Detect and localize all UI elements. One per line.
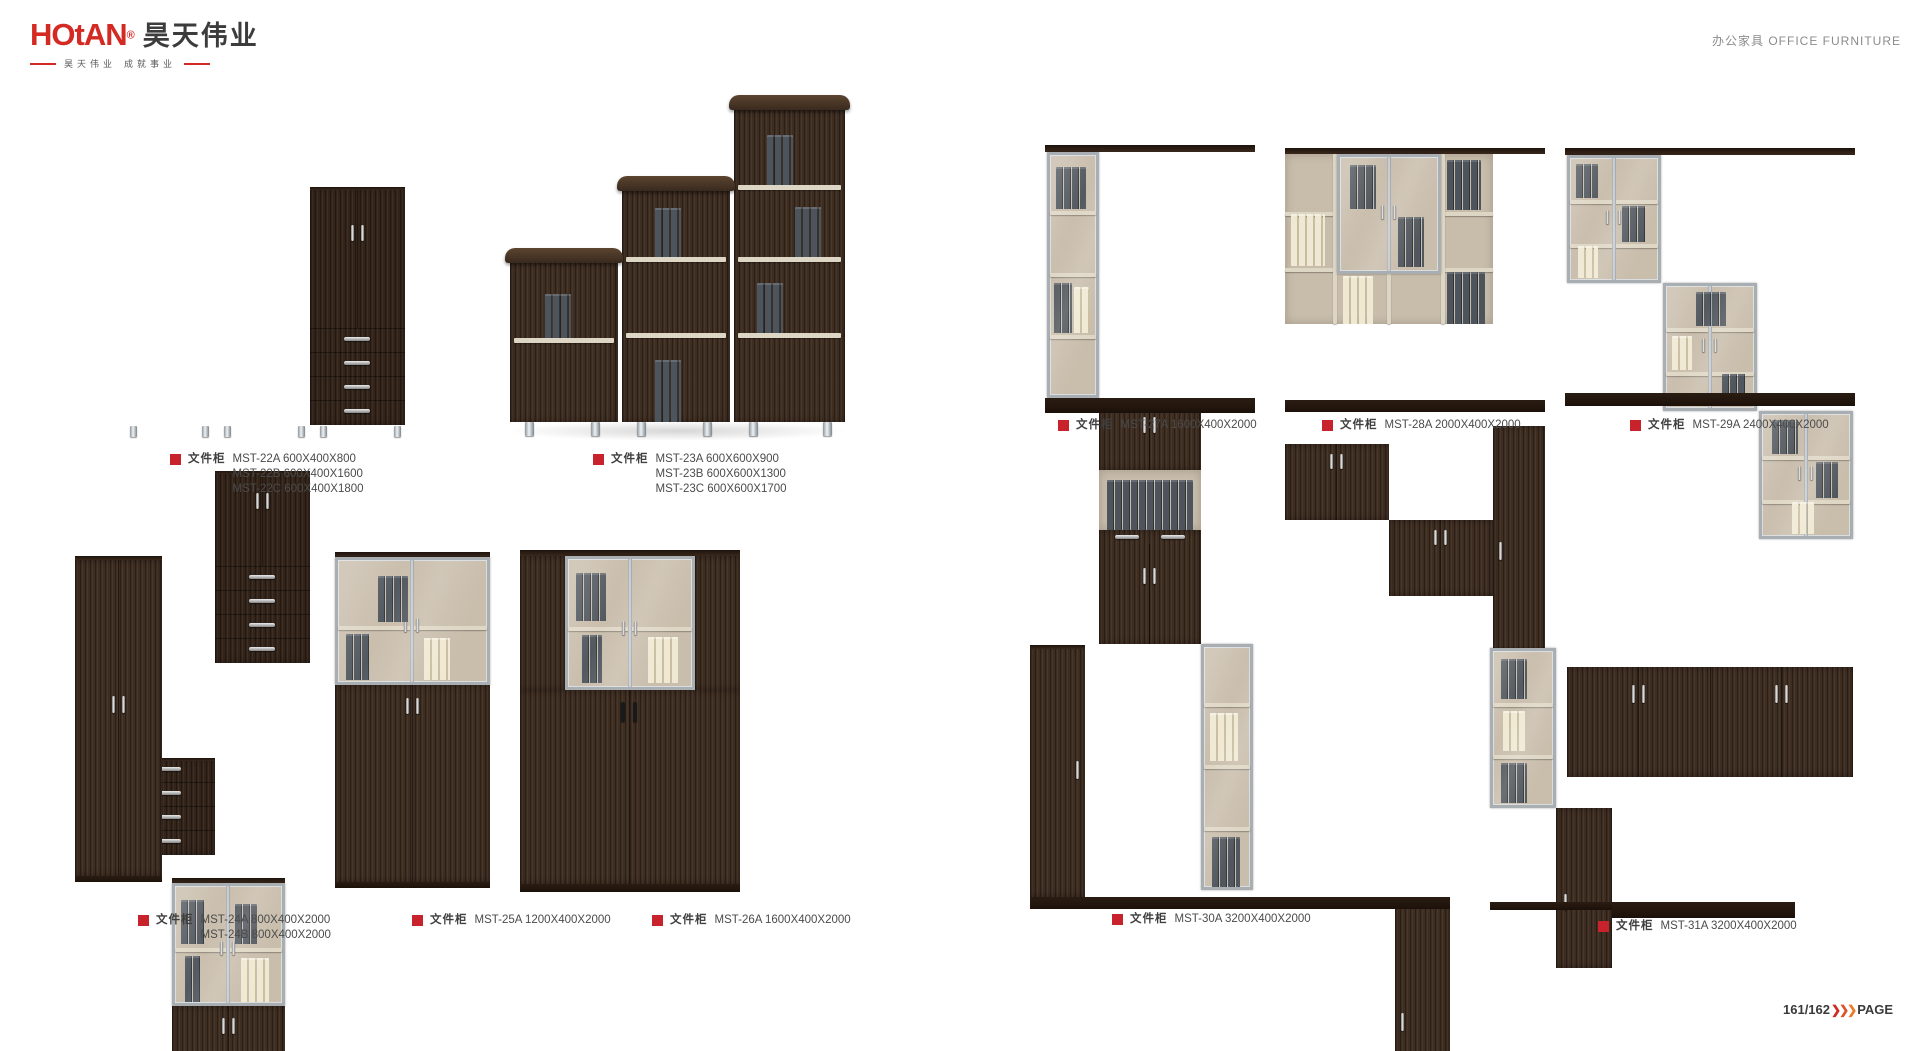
shelf xyxy=(1493,755,1553,759)
binder-group xyxy=(1578,246,1598,278)
cell-divider xyxy=(1387,274,1391,324)
door-handle xyxy=(361,225,364,241)
model-line: MST-24A 800X400X2000 xyxy=(201,913,331,928)
glass-door-unit xyxy=(565,556,695,690)
corner-shelf-top-cap xyxy=(617,176,735,191)
shelf xyxy=(626,257,726,262)
product-label-mst-27: 文件柜 MST-27A 1600X400X2000 xyxy=(1058,418,1257,433)
cabinet-foot xyxy=(749,422,758,436)
product-label-mst-24: 文件柜 MST-24A 800X400X2000 MST-24B 800X400… xyxy=(138,913,331,943)
label-marker-icon xyxy=(1630,420,1641,431)
page-numbers: 161/162 xyxy=(1783,1002,1830,1017)
binder-group xyxy=(1503,711,1525,751)
binder-group xyxy=(655,208,681,257)
product-models: MST-28A 2000X400X2000 xyxy=(1385,418,1521,433)
product-label-mst-22: 文件柜 MST-22A 600X400X800 MST-22B 600X400X… xyxy=(170,452,364,497)
product-models: MST-26A 1600X400X2000 xyxy=(715,913,851,928)
glass-door-section xyxy=(1663,283,1757,411)
product-models: MST-22A 600X400X800 MST-22B 600X400X1600… xyxy=(233,452,364,497)
door-seam xyxy=(412,685,413,882)
label-marker-icon xyxy=(652,915,663,926)
tagline-text-left: 昊天伟业 xyxy=(64,57,116,70)
product-models: MST-31A 3200X400X2000 xyxy=(1661,919,1797,934)
product-label-mst-28: 文件柜 MST-28A 2000X400X2000 xyxy=(1322,418,1521,433)
plinth xyxy=(1030,897,1450,909)
door-handle xyxy=(406,698,409,714)
product-models: MST-27A 1600X400X2000 xyxy=(1121,418,1257,433)
cabinet-foot xyxy=(525,422,534,436)
plinth xyxy=(1612,902,1795,918)
cabinet-foot xyxy=(703,422,712,436)
door-handle xyxy=(1381,205,1384,219)
product-image-mst-25 xyxy=(335,552,490,890)
shelf xyxy=(1050,273,1096,277)
cabinet-foot xyxy=(591,422,600,436)
label-marker-icon xyxy=(593,454,604,465)
binder-group xyxy=(1447,272,1485,324)
door-seam xyxy=(1387,157,1391,271)
tagline-bar-right xyxy=(184,63,210,65)
binder-group xyxy=(1056,167,1086,209)
door-handle xyxy=(1702,338,1705,352)
glass-door-unit xyxy=(1337,154,1441,274)
door-seam xyxy=(629,690,630,884)
shelf xyxy=(1050,211,1096,215)
door-handle xyxy=(1499,542,1502,560)
binder-group xyxy=(545,294,571,338)
page-word: PAGE xyxy=(1857,1002,1893,1017)
plinth xyxy=(1490,902,1612,910)
plinth xyxy=(1565,393,1855,406)
shelf xyxy=(738,333,841,338)
door-handle xyxy=(1798,466,1801,480)
cabinet-side-panel xyxy=(520,556,565,690)
shelf xyxy=(626,333,726,338)
cabinet-foot xyxy=(320,426,327,437)
product-image-mst-29 xyxy=(1565,148,1855,408)
door-handle xyxy=(1714,338,1717,352)
drawer-handle xyxy=(1115,535,1139,539)
cabinet-door xyxy=(1099,530,1201,644)
binder-group xyxy=(346,634,370,680)
binder-group xyxy=(1074,287,1089,333)
product-type: 文件柜 xyxy=(156,913,194,943)
product-label-mst-30: 文件柜 MST-30A 3200X400X2000 xyxy=(1112,912,1311,927)
floor-shadow xyxy=(505,421,850,441)
door-seam xyxy=(1336,444,1337,520)
door-handle xyxy=(1444,530,1447,545)
model-line: MST-27A 1600X400X2000 xyxy=(1121,418,1257,433)
door-handle xyxy=(351,225,354,241)
model-line: MST-22A 600X400X800 xyxy=(233,452,364,467)
binder-group xyxy=(378,576,408,622)
drawer-seam xyxy=(310,400,405,401)
binder-group xyxy=(241,958,269,1002)
model-line: MST-23A 600X600X900 xyxy=(656,452,787,467)
product-label-mst-29: 文件柜 MST-29A 2400X400X2000 xyxy=(1630,418,1829,433)
shelf xyxy=(738,257,841,262)
model-line: MST-23B 600X600X1300 xyxy=(656,467,787,482)
drawer-handle xyxy=(344,361,370,365)
door-handle xyxy=(621,702,625,722)
corner-shelf-top-cap xyxy=(729,95,850,110)
label-marker-icon xyxy=(1322,420,1333,431)
product-image-mst-30 xyxy=(1030,643,1450,909)
door-handle xyxy=(634,621,637,635)
label-marker-icon xyxy=(1112,914,1123,925)
door-handle xyxy=(633,702,637,722)
cabinet-foot xyxy=(394,426,401,437)
binder-group xyxy=(1291,214,1325,266)
model-line: MST-30A 3200X400X2000 xyxy=(1175,912,1311,927)
door-handle xyxy=(220,941,223,955)
logo-brand-cn: 昊天伟业 xyxy=(143,21,259,51)
binder-group xyxy=(424,638,450,680)
cabinet xyxy=(310,187,405,425)
label-marker-icon xyxy=(1598,921,1609,932)
cabinet-foot xyxy=(823,422,832,436)
plinth xyxy=(520,884,740,892)
cabinet-door xyxy=(1556,808,1612,968)
door-handle xyxy=(1340,454,1343,469)
door-seam xyxy=(357,190,358,328)
label-marker-icon xyxy=(138,915,149,926)
product-type: 文件柜 xyxy=(1648,418,1686,433)
door-seam xyxy=(1440,520,1441,596)
cabinet xyxy=(172,878,285,1051)
product-models: MST-23A 600X600X900 MST-23B 600X600X1300… xyxy=(656,452,787,497)
binder-group xyxy=(1398,217,1424,267)
plinth xyxy=(1045,398,1255,413)
product-label-mst-25: 文件柜 MST-25A 1200X400X2000 xyxy=(412,913,611,928)
model-line: MST-22C 600X400X1800 xyxy=(233,482,364,497)
model-line: MST-26A 1600X400X2000 xyxy=(715,913,851,928)
model-line: MST-22B 600X400X1600 xyxy=(233,467,364,482)
product-image-mst-23 xyxy=(505,95,850,442)
door-handle xyxy=(1393,205,1396,219)
cabinet-top-edge xyxy=(1045,145,1255,152)
door-handle xyxy=(1153,568,1156,584)
product-image-mst-28 xyxy=(1285,148,1545,412)
shelf xyxy=(1050,335,1096,339)
model-line: MST-24B 800X400X2000 xyxy=(201,928,331,943)
binder-group xyxy=(1107,480,1193,530)
binder-group xyxy=(1343,276,1373,324)
drawer-handle xyxy=(344,409,370,413)
cabinet-foot xyxy=(202,426,209,437)
door-handle xyxy=(1606,210,1609,224)
page-footer: 161/162 ❯❯❯ PAGE xyxy=(1783,1002,1893,1017)
brand-logo: HOtAN®昊天伟业 昊天伟业 成就事业 xyxy=(30,14,259,70)
door-handle xyxy=(1330,454,1333,469)
category-header: 办公家具 OFFICE FURNITURE xyxy=(1712,32,1901,49)
label-marker-icon xyxy=(1058,420,1069,431)
product-models: MST-30A 3200X400X2000 xyxy=(1175,912,1311,927)
shelf xyxy=(514,338,614,343)
door-seam xyxy=(118,560,119,876)
binder-group xyxy=(1576,164,1598,198)
model-line: MST-23C 600X600X1700 xyxy=(656,482,787,497)
door-handle xyxy=(1143,568,1146,584)
binder-group xyxy=(1622,206,1646,242)
door-handle xyxy=(1810,466,1813,480)
cabinet-foot xyxy=(224,426,231,437)
binder-group xyxy=(655,360,681,422)
door-handle xyxy=(622,621,625,635)
drawer-handle xyxy=(344,337,370,341)
product-models: MST-29A 2400X400X2000 xyxy=(1693,418,1829,433)
product-models: MST-24A 800X400X2000 MST-24B 800X400X200… xyxy=(201,913,331,943)
product-type: 文件柜 xyxy=(611,452,649,497)
product-label-mst-23: 文件柜 MST-23A 600X600X900 MST-23B 600X600X… xyxy=(593,452,787,497)
binder-group xyxy=(1350,165,1376,209)
cabinet xyxy=(75,556,162,882)
tagline-text-right: 成就事业 xyxy=(124,57,176,70)
model-line: MST-25A 1200X400X2000 xyxy=(475,913,611,928)
door-handle xyxy=(416,618,419,632)
cell-divider xyxy=(1441,154,1445,324)
binder-group xyxy=(1501,763,1527,803)
registered-mark: ® xyxy=(127,30,135,42)
product-label-mst-31: 文件柜 MST-31A 3200X400X2000 xyxy=(1598,919,1797,934)
door-handle xyxy=(1618,210,1621,224)
glass-door-section xyxy=(1567,155,1661,283)
binder-group xyxy=(1696,292,1726,326)
product-type: 文件柜 xyxy=(1340,418,1378,433)
plinth xyxy=(335,882,490,888)
door-seam xyxy=(1149,544,1150,644)
cabinet-door xyxy=(520,690,740,884)
cabinet-tall-door xyxy=(1030,645,1085,897)
product-models: MST-25A 1200X400X2000 xyxy=(475,913,611,928)
tagline-bar-left xyxy=(30,63,56,65)
panel-seam xyxy=(310,328,405,329)
shelf xyxy=(738,185,841,190)
cabinet-door xyxy=(1389,520,1493,596)
cabinet-tall-door xyxy=(1395,897,1450,1051)
cabinet-tall-door xyxy=(1493,426,1545,672)
product-type: 文件柜 xyxy=(670,913,708,928)
binder-group xyxy=(185,956,201,1002)
drawer-seam xyxy=(310,376,405,377)
glass-door-unit xyxy=(172,883,285,1006)
label-marker-icon xyxy=(170,454,181,465)
cabinet-foot xyxy=(298,426,305,437)
binder-group xyxy=(767,135,793,185)
door-seam xyxy=(410,560,414,682)
logo-wordmark: HOtAN®昊天伟业 xyxy=(30,14,259,53)
product-type: 文件柜 xyxy=(430,913,468,928)
binder-group xyxy=(1447,160,1481,210)
binder-group xyxy=(1501,659,1527,699)
product-type: 文件柜 xyxy=(1616,919,1654,934)
model-line: MST-28A 2000X400X2000 xyxy=(1385,418,1521,433)
cabinet-foot xyxy=(130,426,137,437)
drawer-seam xyxy=(310,352,405,353)
glass-door-column xyxy=(1490,648,1556,808)
shelf xyxy=(1493,703,1553,707)
product-image-mst-26 xyxy=(520,550,740,892)
cabinet-top-edge xyxy=(1565,148,1855,155)
glass-door-unit xyxy=(335,557,490,685)
plinth xyxy=(1285,400,1545,412)
product-type: 文件柜 xyxy=(1130,912,1168,927)
door-handle xyxy=(122,696,125,713)
product-type: 文件柜 xyxy=(188,452,226,497)
door-seam xyxy=(228,1006,229,1051)
drawer-handle xyxy=(344,385,370,389)
cabinet-side-panel xyxy=(695,556,740,690)
door-seam xyxy=(226,886,230,1003)
door-handle xyxy=(222,1018,225,1034)
door-handle xyxy=(232,1018,235,1034)
product-image-mst-31 xyxy=(1490,640,1880,918)
binder-group xyxy=(576,573,606,621)
door-handle xyxy=(1076,761,1079,779)
binder-group xyxy=(1672,336,1692,370)
model-line: MST-29A 2400X400X2000 xyxy=(1693,418,1829,433)
drawer-handle xyxy=(1161,535,1185,539)
cabinet-foot xyxy=(637,422,646,436)
door-seam xyxy=(628,559,632,687)
product-type: 文件柜 xyxy=(1076,418,1114,433)
door-handle xyxy=(1434,530,1437,545)
cabinet-top-edge xyxy=(1030,645,1085,649)
product-image-mst-22 xyxy=(100,150,410,442)
binder-group xyxy=(1054,283,1072,333)
binder-group xyxy=(1816,462,1838,498)
label-marker-icon xyxy=(412,915,423,926)
binder-group xyxy=(757,283,783,333)
catalog-page: HOtAN®昊天伟业 昊天伟业 成就事业 办公家具 OFFICE FURNITU… xyxy=(0,0,1920,1051)
page-chevrons-icon: ❯❯❯ xyxy=(1831,1003,1855,1017)
cabinet-center-column xyxy=(1099,398,1201,644)
logo-tagline: 昊天伟业 成就事业 xyxy=(30,57,259,70)
door-seam xyxy=(1612,158,1616,280)
cabinet-door xyxy=(1285,444,1389,520)
glass-door-column xyxy=(1047,152,1099,398)
corner-shelf-top-cap xyxy=(505,248,623,263)
binder-group xyxy=(648,637,678,683)
plinth xyxy=(75,876,162,882)
product-label-mst-26: 文件柜 MST-26A 1600X400X2000 xyxy=(652,913,851,928)
door-handle xyxy=(1401,1013,1404,1031)
door-handle xyxy=(112,696,115,713)
product-image-mst-24 xyxy=(75,552,285,890)
product-image-mst-27 xyxy=(1045,145,1255,415)
binder-group xyxy=(1792,502,1814,534)
logo-brand-latin: HOtAN xyxy=(30,17,127,52)
door-handle xyxy=(416,698,419,714)
binder-group xyxy=(795,207,821,257)
model-line: MST-31A 3200X400X2000 xyxy=(1661,919,1797,934)
binder-group xyxy=(582,635,602,683)
